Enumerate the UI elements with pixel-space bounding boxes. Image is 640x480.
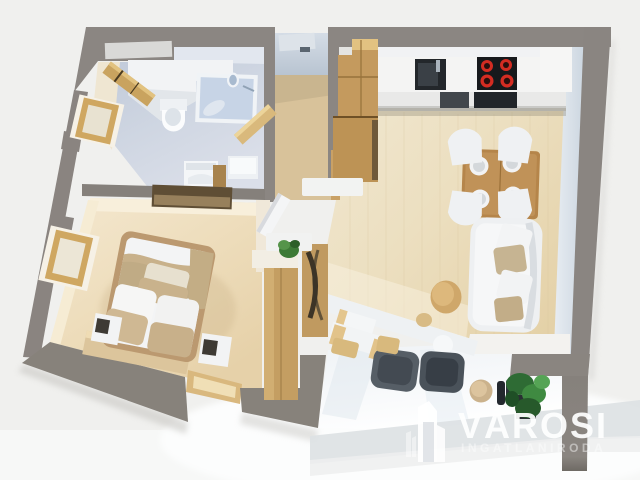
svg-text:VÁROSI: VÁROSI	[458, 405, 608, 446]
svg-text:INGATLANIRODA: INGATLANIRODA	[461, 441, 606, 455]
